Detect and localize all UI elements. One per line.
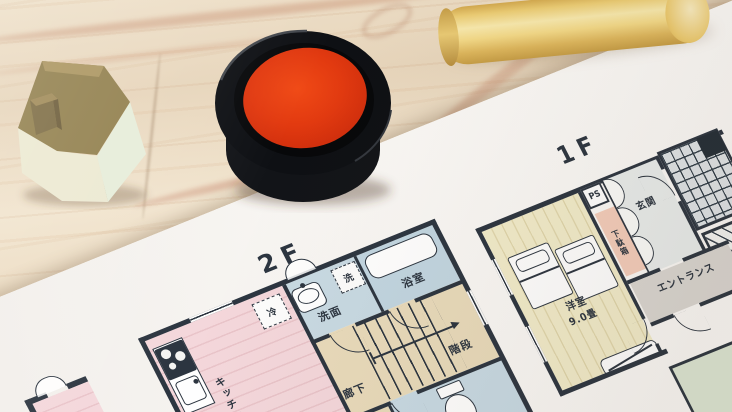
- house-figurine: [0, 55, 170, 210]
- ink-pad: [205, 18, 400, 213]
- room-green: [668, 319, 732, 412]
- photo-scene: 2F キッチン 冷 洗 洗面 浴室: [0, 0, 732, 412]
- floor1-title: 1F: [539, 123, 618, 176]
- pipe-space-label: PS: [587, 189, 603, 203]
